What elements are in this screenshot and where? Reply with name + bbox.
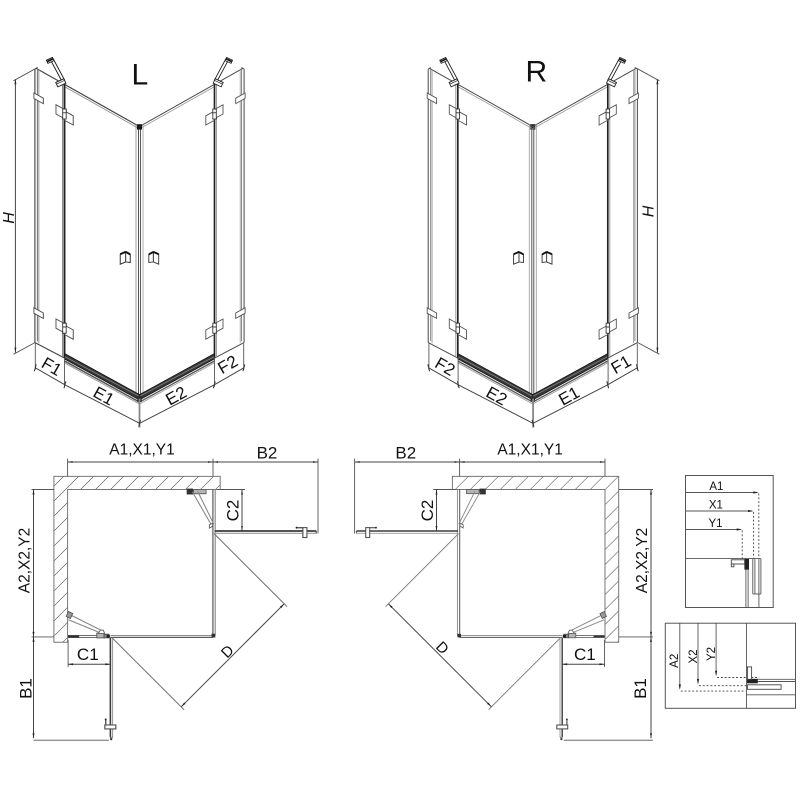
svg-text:B1: B1 (16, 678, 35, 699)
svg-text:A2,X2,Y2: A2,X2,Y2 (16, 528, 33, 594)
svg-text:H: H (641, 205, 658, 217)
svg-text:B1: B1 (631, 678, 650, 699)
svg-text:X1: X1 (709, 499, 723, 511)
svg-text:B2: B2 (257, 444, 278, 463)
svg-text:A1: A1 (709, 481, 723, 493)
svg-text:A2: A2 (669, 654, 681, 668)
svg-text:A1,X1,Y1: A1,X1,Y1 (497, 442, 563, 459)
svg-text:A2,X2,Y2: A2,X2,Y2 (634, 528, 651, 594)
svg-text:R: R (525, 56, 547, 89)
svg-text:B2: B2 (395, 444, 416, 463)
svg-text:C1: C1 (77, 645, 99, 664)
svg-text:H: H (1, 212, 18, 224)
svg-text:A1,X1,Y1: A1,X1,Y1 (109, 442, 175, 459)
svg-text:Y1: Y1 (708, 518, 722, 530)
svg-text:C2: C2 (418, 500, 437, 522)
svg-text:C2: C2 (224, 500, 243, 522)
svg-text:L: L (132, 59, 149, 92)
svg-text:C1: C1 (574, 645, 596, 664)
